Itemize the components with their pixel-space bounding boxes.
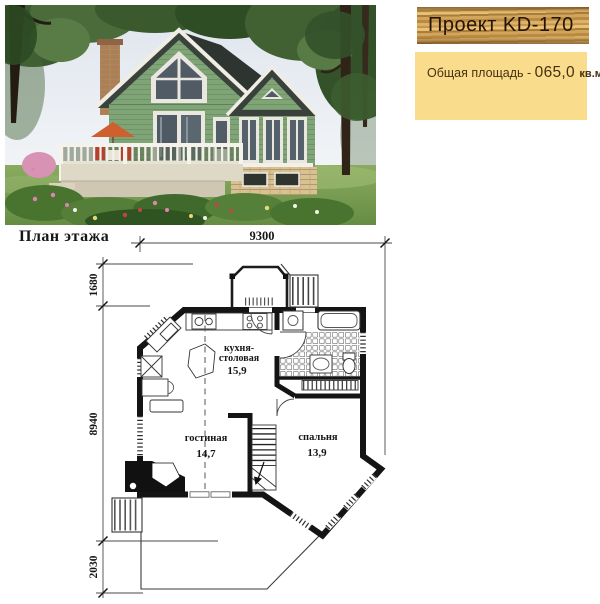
bathroom-sink	[310, 355, 332, 373]
dim-width: 9300	[250, 229, 275, 243]
room-bedroom-area: 13,9	[307, 447, 327, 459]
staircase	[252, 425, 276, 490]
closet	[302, 381, 358, 391]
dim-left-bottom: 2030	[88, 555, 100, 578]
catalog-page: Проект KD-170 Общая площадь - 065,0 кв.м…	[0, 0, 600, 604]
bathtub	[318, 311, 360, 330]
room-living-line1: гостиная	[185, 433, 228, 444]
project-title: Проект KD-170	[428, 14, 574, 37]
bay-window	[230, 267, 289, 307]
area-label: Общая площадь -	[427, 66, 535, 80]
exterior-stairs	[112, 498, 142, 532]
room-bedroom-line1: спальня	[298, 432, 338, 443]
dim-left-middle: 8940	[88, 412, 100, 435]
room-living-area: 14,7	[196, 448, 216, 460]
room-kitchen-area: 15,9	[227, 365, 247, 377]
total-area-box: Общая площадь - 065,0 кв.м.	[415, 52, 587, 120]
fireplace	[125, 461, 185, 492]
house-photo-illustration	[5, 5, 376, 225]
project-banner: Проект KD-170	[417, 7, 589, 44]
washer	[283, 311, 303, 330]
area-value: 065,0	[535, 64, 575, 81]
dim-left-upper: 1680	[88, 273, 100, 296]
room-kitchen-line2: столовая	[219, 353, 260, 364]
toilet	[343, 353, 355, 374]
area-unit: кв.м.	[579, 68, 600, 80]
house-photo	[5, 5, 376, 225]
dining-table	[188, 344, 215, 378]
floor-plan: 9300 1680 8940 2030	[0, 225, 440, 604]
living-room-cabinet	[150, 400, 183, 412]
